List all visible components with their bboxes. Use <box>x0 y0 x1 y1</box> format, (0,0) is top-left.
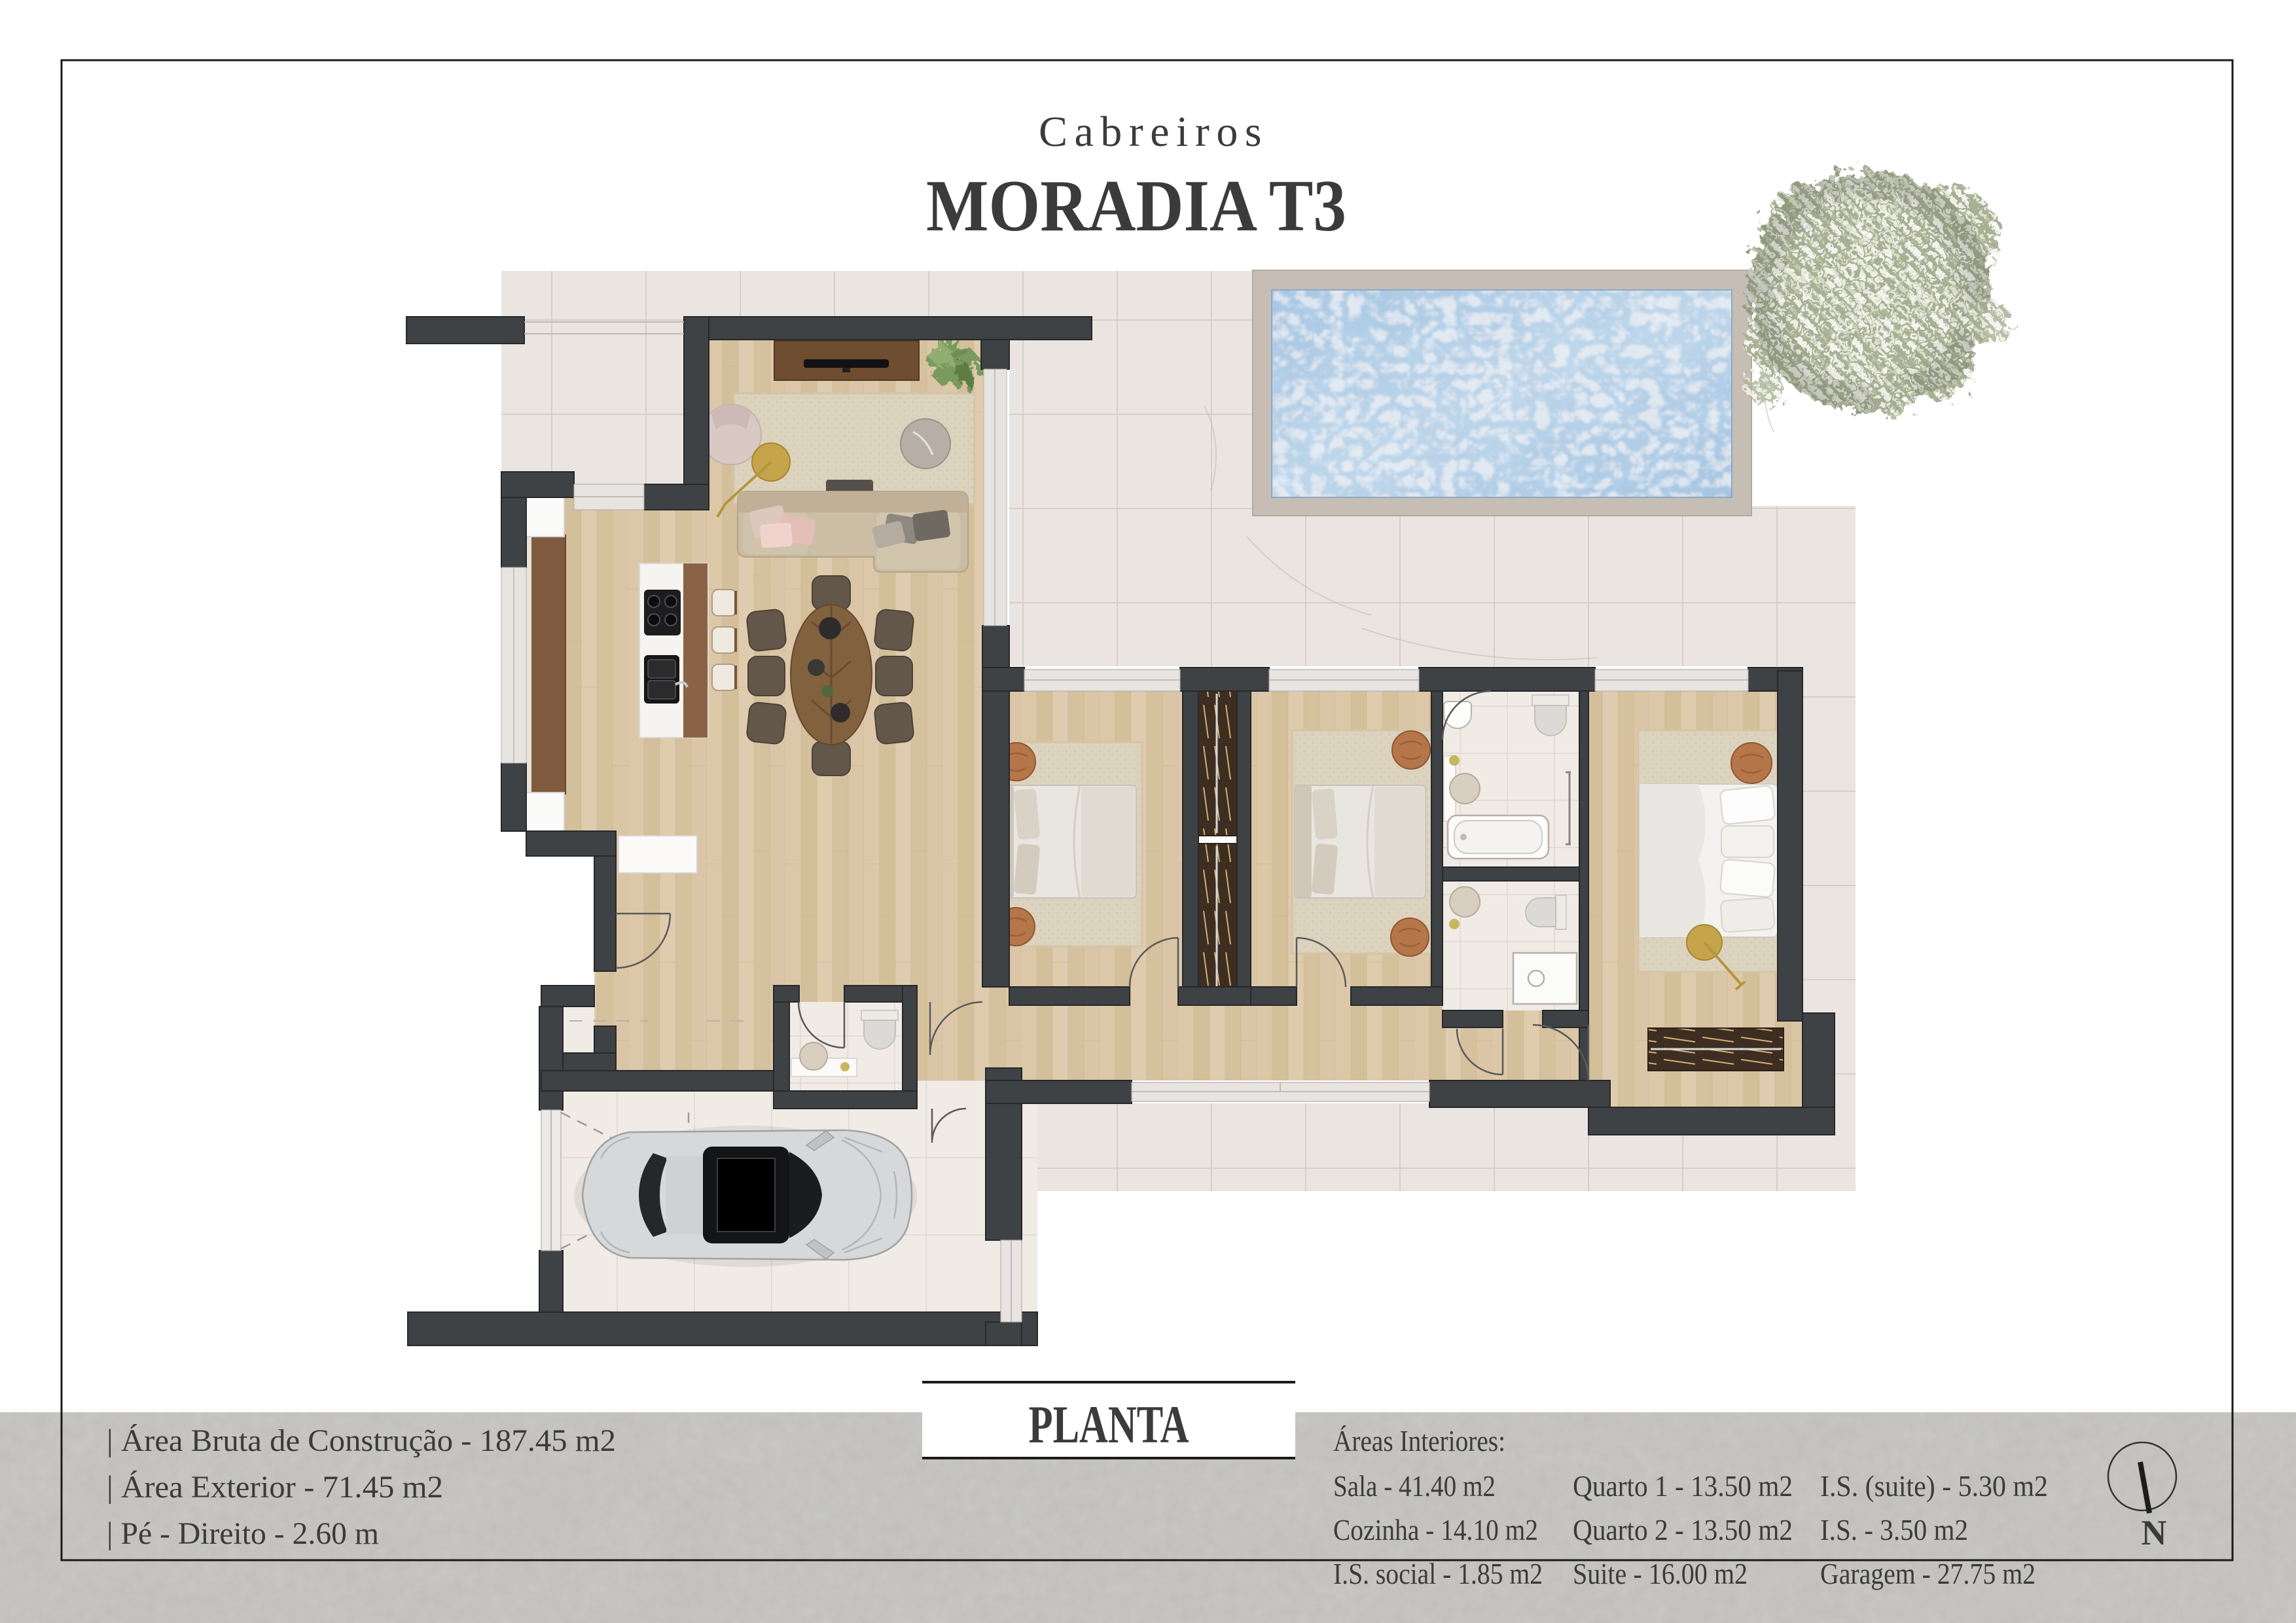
svg-text:Sala - 41.40 m2: Sala - 41.40 m2 <box>1333 1469 1496 1503</box>
svg-text:MORADIA T3: MORADIA T3 <box>926 166 1346 247</box>
svg-text:| Área Bruta de Construção - 1: | Área Bruta de Construção - 187.45 m2 <box>107 1423 616 1458</box>
svg-text:I.S. (suite) - 5.30 m2: I.S. (suite) - 5.30 m2 <box>1820 1469 2048 1503</box>
svg-text:I.S. - 3.50 m2: I.S. - 3.50 m2 <box>1820 1513 1968 1546</box>
svg-text:PLANTA: PLANTA <box>1029 1395 1189 1454</box>
svg-text:Áreas Interiores:: Áreas Interiores: <box>1333 1424 1505 1457</box>
svg-text:I.S. social - 1.85 m2: I.S. social - 1.85 m2 <box>1333 1557 1543 1590</box>
svg-text:| Área Exterior - 71.45 m2: | Área Exterior - 71.45 m2 <box>107 1470 443 1505</box>
svg-text:Quarto 2 - 13.50 m2: Quarto 2 - 13.50 m2 <box>1573 1513 1793 1546</box>
svg-text:Cabreiros: Cabreiros <box>1039 108 1268 156</box>
svg-text:Quarto 1 - 13.50 m2: Quarto 1 - 13.50 m2 <box>1573 1469 1793 1503</box>
svg-text:Cozinha - 14.10 m2: Cozinha - 14.10 m2 <box>1333 1513 1538 1546</box>
svg-text:N: N <box>2142 1513 2167 1552</box>
svg-text:Suite - 16.00 m2: Suite - 16.00 m2 <box>1573 1557 1748 1590</box>
svg-text:Garagem - 27.75 m2: Garagem - 27.75 m2 <box>1820 1557 2036 1590</box>
svg-text:| Pé - Direito - 2.60 m: | Pé - Direito - 2.60 m <box>107 1516 379 1551</box>
